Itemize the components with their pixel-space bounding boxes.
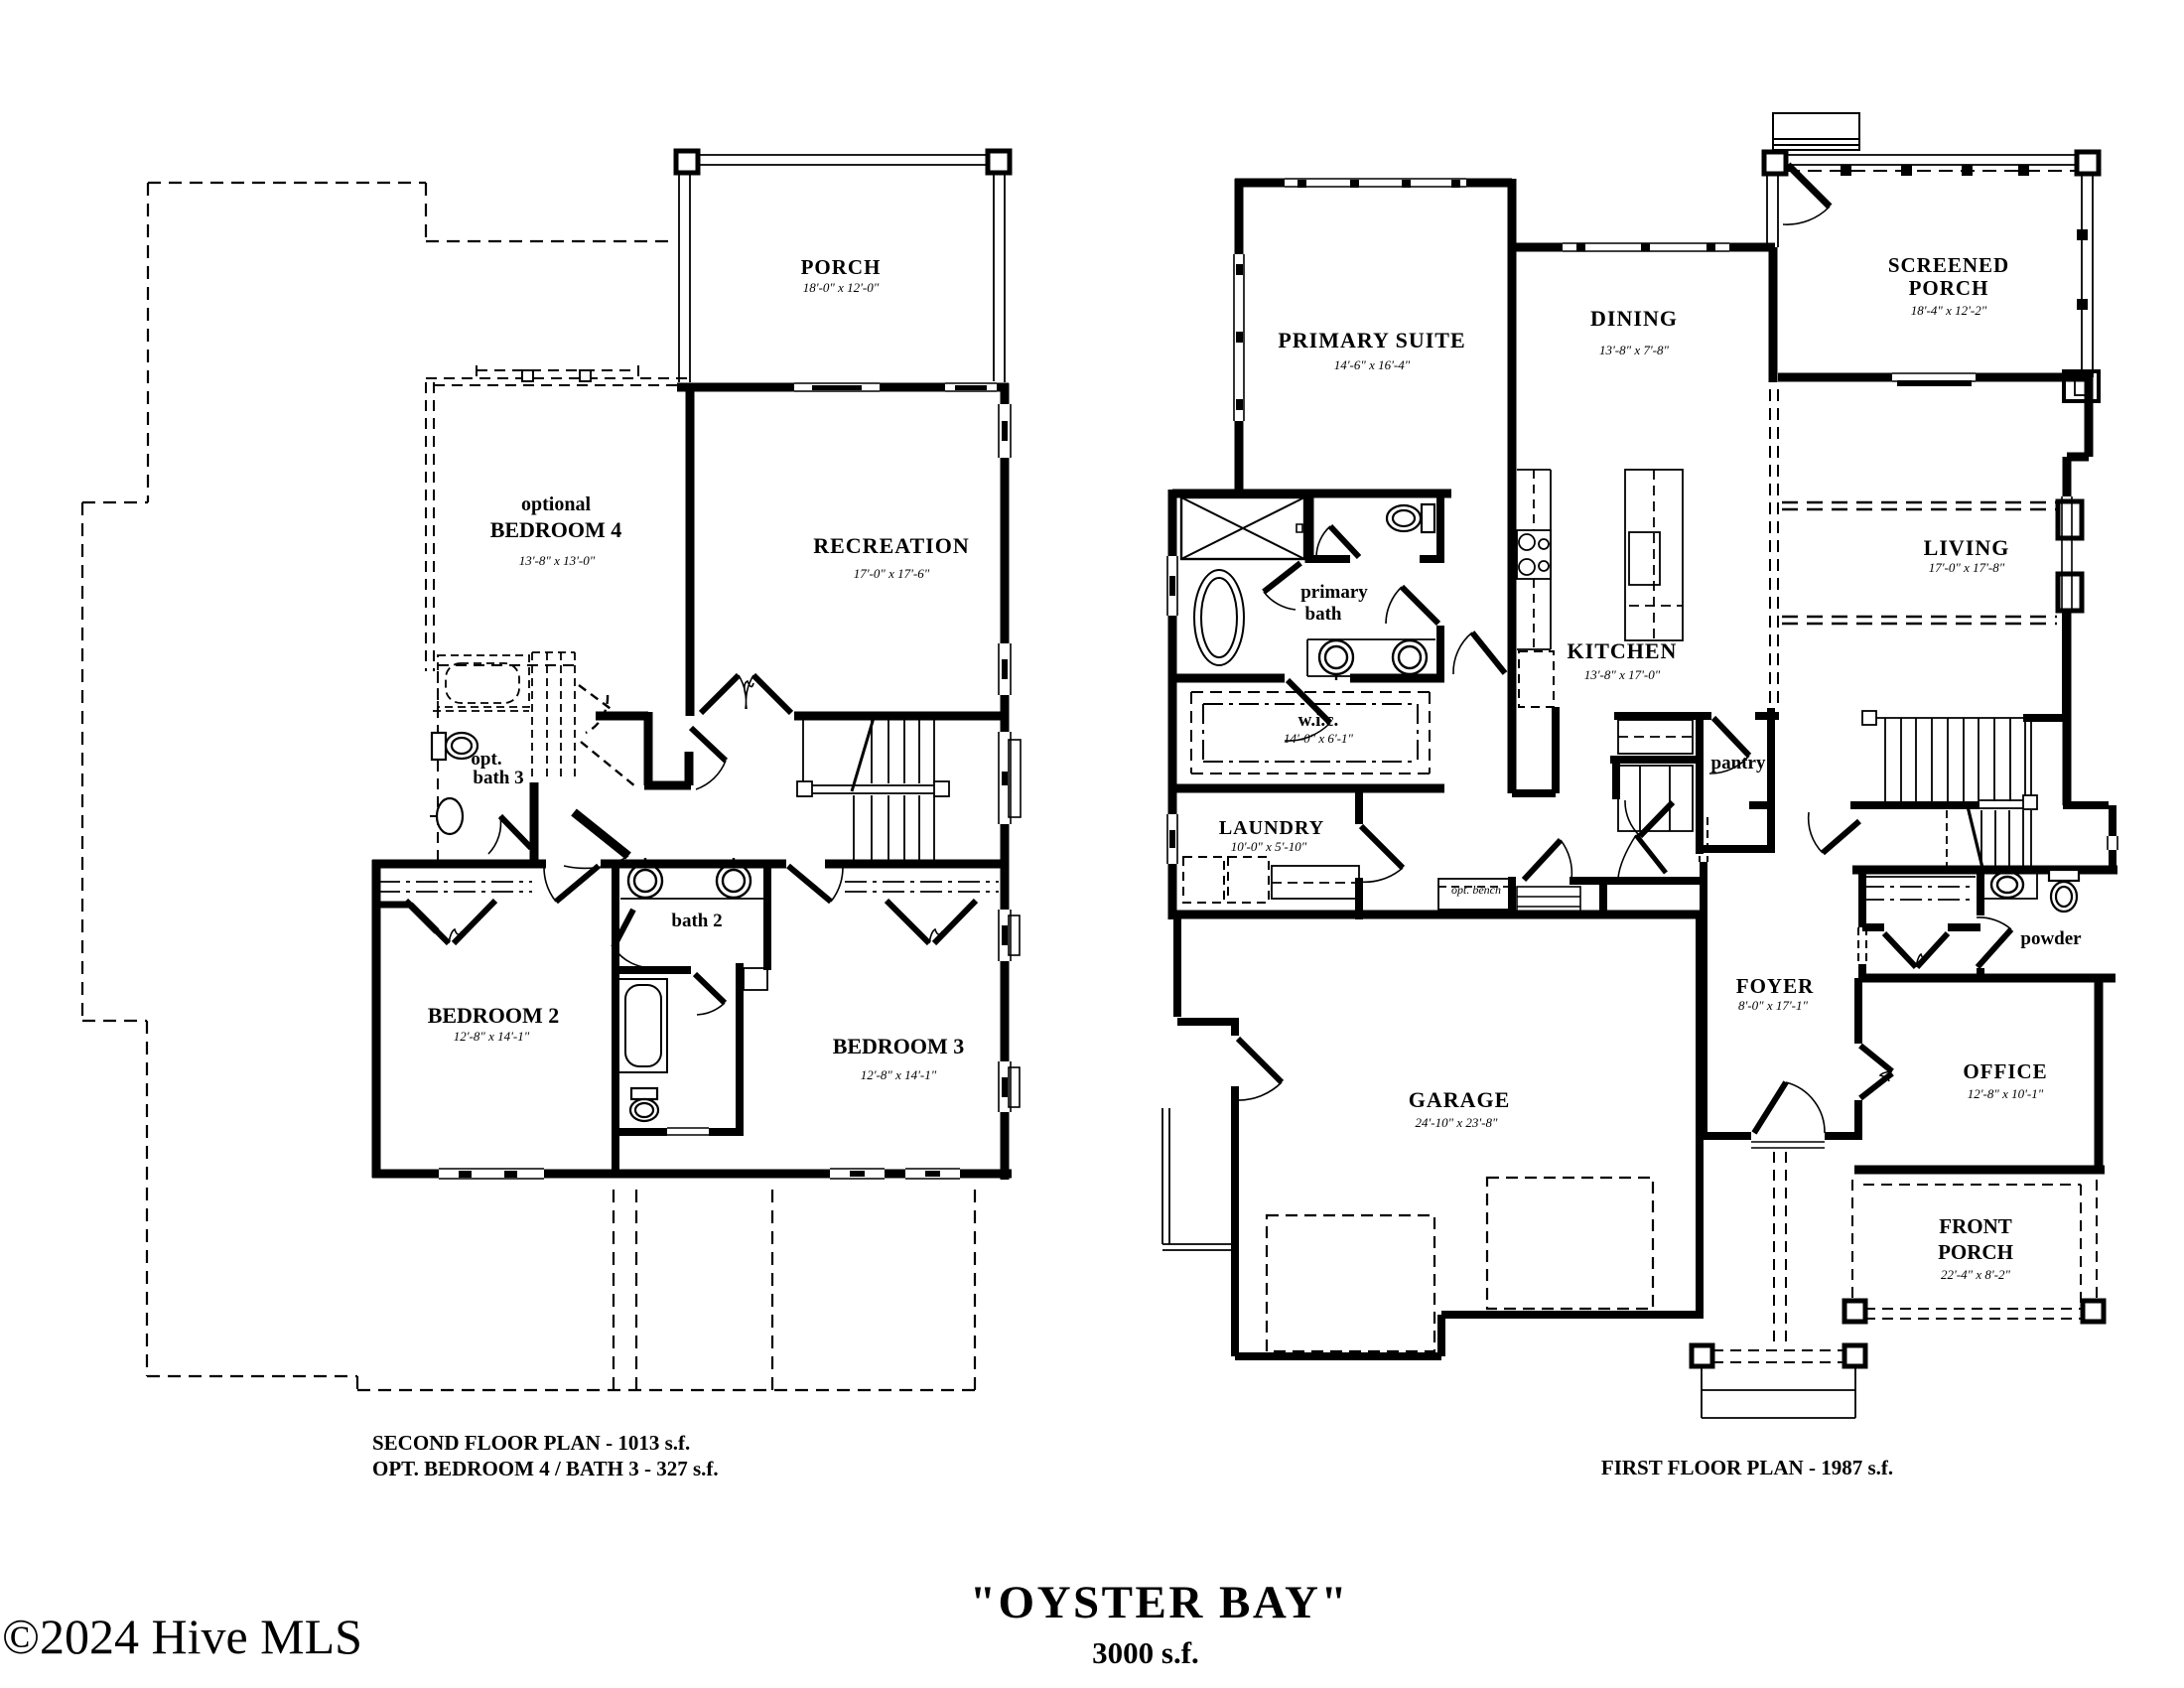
svg-text:bath 2: bath 2	[671, 911, 722, 931]
svg-text:DINING: DINING	[1590, 306, 1678, 331]
svg-text:12'-8" x 14'-1": 12'-8" x 14'-1"	[454, 1029, 530, 1044]
svg-text:pantry: pantry	[1711, 753, 1766, 774]
svg-text:opt.: opt.	[471, 749, 501, 770]
svg-text:FIRST FLOOR PLAN - 1987 s.f.: FIRST FLOOR PLAN - 1987 s.f.	[1601, 1456, 1893, 1479]
svg-text:LAUNDRY: LAUNDRY	[1219, 817, 1324, 839]
svg-text:14'-6" x 16'-4": 14'-6" x 16'-4"	[1334, 357, 1411, 372]
svg-text:FRONT: FRONT	[1939, 1214, 2012, 1238]
svg-text:primary: primary	[1300, 582, 1368, 603]
svg-text:8'-0" x 17'-1": 8'-0" x 17'-1"	[1738, 998, 1808, 1013]
svg-text:RECREATION: RECREATION	[813, 533, 970, 558]
svg-text:SCREENED: SCREENED	[1888, 253, 2009, 277]
svg-text:OFFICE: OFFICE	[1963, 1059, 2047, 1083]
svg-text:GARAGE: GARAGE	[1409, 1087, 1511, 1112]
svg-text:13'-8" x 17'-0": 13'-8" x 17'-0"	[1584, 667, 1661, 682]
svg-text:13'-8" x 13'-0": 13'-8" x 13'-0"	[519, 553, 596, 568]
svg-text:24'-10" x 23'-8": 24'-10" x 23'-8"	[1416, 1115, 1498, 1130]
svg-text:FOYER: FOYER	[1736, 974, 1815, 998]
svg-text:PORCH: PORCH	[1909, 276, 1989, 300]
svg-text:powder: powder	[2020, 928, 2082, 949]
svg-text:14'-0" x 6'-1": 14'-0" x 6'-1"	[1284, 731, 1353, 746]
svg-text:opt. bench: opt. bench	[1451, 883, 1501, 897]
svg-text:SECOND FLOOR PLAN - 1013 s.f.: SECOND FLOOR PLAN - 1013 s.f.	[372, 1431, 690, 1455]
svg-text:BEDROOM 2: BEDROOM 2	[428, 1003, 560, 1028]
svg-text:13'-8" x 7'-8": 13'-8" x 7'-8"	[1599, 343, 1669, 357]
svg-text:18'-0" x 12'-0": 18'-0" x 12'-0"	[803, 280, 880, 295]
svg-text:17'-0" x 17'-8": 17'-0" x 17'-8"	[1929, 560, 2005, 575]
svg-text:12'-8" x 14'-1": 12'-8" x 14'-1"	[861, 1067, 937, 1082]
svg-text:22'-4" x 8'-2": 22'-4" x 8'-2"	[1941, 1267, 2010, 1282]
svg-text:bath 3: bath 3	[473, 768, 523, 788]
svg-text:BEDROOM 4: BEDROOM 4	[490, 517, 622, 542]
svg-text:LIVING: LIVING	[1924, 535, 2010, 560]
svg-text:12'-8" x 10'-1": 12'-8" x 10'-1"	[1968, 1086, 2044, 1101]
svg-text:PRIMARY SUITE: PRIMARY SUITE	[1278, 328, 1465, 352]
svg-text:OPT. BEDROOM 4 / BATH 3 - 327: OPT. BEDROOM 4 / BATH 3 - 327 s.f.	[372, 1457, 719, 1480]
svg-text:optional: optional	[521, 493, 591, 515]
svg-text:KITCHEN: KITCHEN	[1568, 638, 1678, 663]
svg-text:©2024 Hive MLS: ©2024 Hive MLS	[2, 1609, 362, 1664]
svg-text:BEDROOM 3: BEDROOM 3	[833, 1034, 965, 1058]
svg-text:"OYSTER BAY": "OYSTER BAY"	[970, 1577, 1349, 1628]
svg-text:w.i.c.: w.i.c.	[1298, 710, 1339, 731]
svg-text:bath: bath	[1305, 604, 1342, 625]
svg-text:PORCH: PORCH	[801, 255, 882, 279]
svg-text:18'-4" x 12'-2": 18'-4" x 12'-2"	[1911, 303, 1987, 318]
svg-text:17'-0" x 17'-6": 17'-0" x 17'-6"	[854, 566, 930, 581]
svg-text:PORCH: PORCH	[1938, 1240, 2013, 1264]
svg-text:3000 s.f.: 3000 s.f.	[1092, 1635, 1199, 1670]
svg-text:10'-0" x 5'-10": 10'-0" x 5'-10"	[1231, 839, 1307, 854]
